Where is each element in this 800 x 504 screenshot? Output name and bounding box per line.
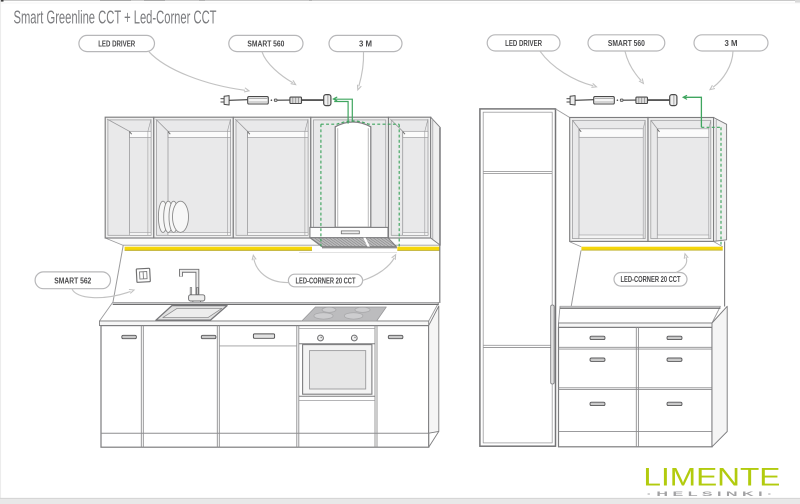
svg-text:Smart Greenline CCT + Led-Corn: Smart Greenline CCT + Led-Corner CCT xyxy=(14,6,217,27)
svg-text:3 M: 3 M xyxy=(359,39,372,49)
svg-text:SMART 560: SMART 560 xyxy=(247,39,284,49)
svg-text:SMART 562: SMART 562 xyxy=(54,275,91,285)
svg-text:3 M: 3 M xyxy=(725,38,738,48)
svg-text:LED DRIVER: LED DRIVER xyxy=(505,38,543,48)
svg-text:LIMENTE: LIMENTE xyxy=(643,463,780,491)
svg-text:· H E L S I N K I ·: · H E L S I N K I · xyxy=(647,491,773,498)
svg-text:LED DRIVER: LED DRIVER xyxy=(98,39,136,49)
svg-text:LED-CORNER 20 CCT: LED-CORNER 20 CCT xyxy=(296,276,356,285)
svg-text:LED-CORNER 20 CCT: LED-CORNER 20 CCT xyxy=(621,275,681,284)
svg-text:SMART 560: SMART 560 xyxy=(608,38,645,48)
